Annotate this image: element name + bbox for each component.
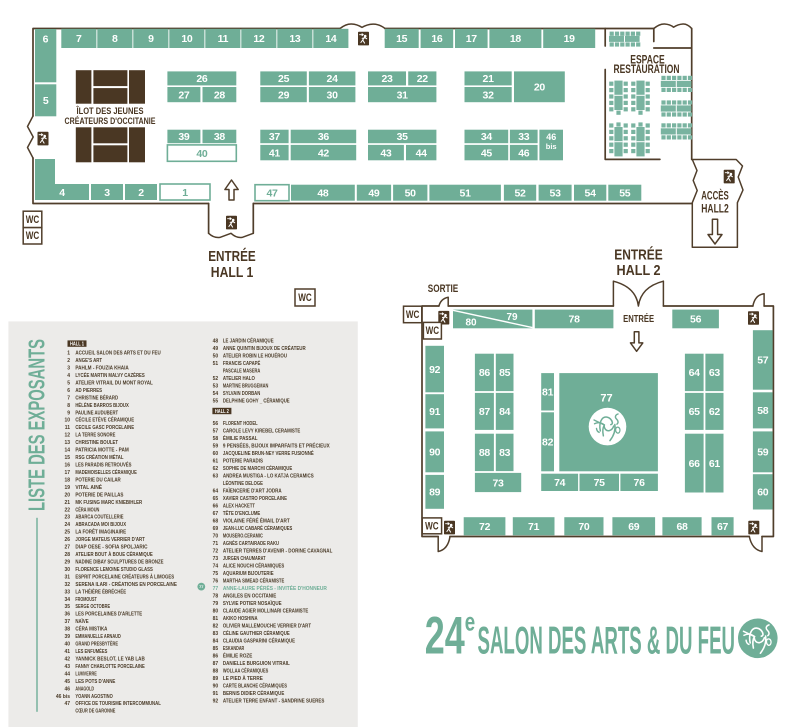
svg-text:11: 11	[218, 33, 229, 45]
svg-text:7: 7	[67, 395, 70, 401]
svg-text:OFFICE DE TOURISME INTERCOMMUN: OFFICE DE TOURISME INTERCOMMUNAL	[75, 701, 160, 707]
svg-text:PATRICIA MOTTE - PAM: PATRICIA MOTTE - PAM	[75, 448, 128, 454]
svg-text:AD PIERRES: AD PIERRES	[75, 388, 102, 394]
svg-text:4: 4	[67, 373, 70, 379]
svg-text:77: 77	[213, 586, 219, 592]
svg-text:66: 66	[213, 503, 219, 509]
svg-text:ABRACADA MOI BIJOUX: ABRACADA MOI BIJOUX	[75, 522, 126, 528]
svg-text:47: 47	[266, 188, 278, 200]
svg-text:LE PIED À TERRE: LE PIED À TERRE	[223, 675, 264, 682]
svg-text:68: 68	[676, 521, 688, 533]
svg-text:83: 83	[213, 631, 219, 637]
svg-text:69: 69	[628, 521, 640, 533]
svg-text:21: 21	[64, 500, 70, 506]
svg-text:52: 52	[514, 188, 526, 200]
svg-text:82: 82	[542, 437, 554, 449]
svg-text:8: 8	[112, 33, 118, 45]
svg-text:83: 83	[499, 447, 511, 459]
svg-text:ENTRÉE: ENTRÉE	[208, 248, 256, 265]
svg-text:85: 85	[213, 646, 219, 652]
svg-text:FLORENCE LEMOINE STUDIO GLASS: FLORENCE LEMOINE STUDIO GLASS	[75, 567, 153, 573]
svg-text:58: 58	[757, 405, 769, 417]
svg-text:CÉLINE GAUTHIER CÉRAMIQUE: CÉLINE GAUTHIER CÉRAMIQUE	[223, 629, 290, 637]
svg-text:70: 70	[213, 533, 219, 539]
svg-text:5: 5	[43, 95, 49, 107]
svg-text:CLAUDIA GASPARINI CÉRAMIQUE: CLAUDIA GASPARINI CÉRAMIQUE	[223, 636, 296, 644]
svg-text:18: 18	[510, 33, 522, 45]
svg-text:54: 54	[585, 188, 597, 200]
svg-text:54: 54	[213, 391, 219, 397]
svg-text:36: 36	[64, 612, 70, 618]
svg-text:9 PENSÉES, BIJOUX IMPARFAITS E: 9 PENSÉES, BIJOUX IMPARFAITS ET PRÉCIEUX	[223, 441, 330, 449]
svg-text:29: 29	[64, 559, 70, 565]
svg-text:57: 57	[213, 428, 219, 434]
svg-text:RSG CRÉATION MÉTAL: RSG CRÉATION MÉTAL	[75, 453, 123, 461]
svg-text:13: 13	[64, 440, 70, 446]
svg-text:91: 91	[213, 691, 219, 697]
svg-text:CECILE GASC PORCELAINE: CECILE GASC PORCELAINE	[75, 425, 134, 431]
svg-text:ANGE'S ART: ANGE'S ART	[75, 358, 102, 364]
svg-text:79: 79	[506, 312, 518, 323]
svg-text:FANNY CHARLOTTE PORCELAINE: FANNY CHARLOTTE PORCELAINE	[75, 664, 145, 670]
svg-text:72: 72	[213, 548, 219, 554]
svg-text:WC: WC	[298, 292, 312, 304]
svg-text:46: 46	[546, 132, 556, 142]
svg-text:WC: WC	[426, 325, 440, 337]
svg-text:ÉMILIE PASSAL: ÉMILIE PASSAL	[223, 434, 258, 442]
svg-text:LA THÉIÈRE ÉBRÉCHÉE: LA THÉIÈRE ÉBRÉCHÉE	[75, 587, 126, 595]
svg-text:MARTINE BRUGGEMAN: MARTINE BRUGGEMAN	[223, 383, 269, 389]
svg-text:45: 45	[481, 147, 493, 159]
svg-text:88: 88	[479, 447, 491, 459]
svg-text:33: 33	[64, 589, 70, 595]
svg-text:NADINE DIBAY SCULPTURES DE BRO: NADINE DIBAY SCULPTURES DE BRONZE	[75, 559, 164, 565]
svg-text:CÉRA MOUN: CÉRA MOUN	[75, 505, 99, 513]
svg-text:88: 88	[213, 668, 219, 674]
svg-text:8: 8	[67, 403, 70, 409]
svg-text:89: 89	[429, 487, 441, 499]
svg-text:12: 12	[64, 433, 70, 439]
svg-text:LYCÉE MARTIN MALVY CAZÈRES: LYCÉE MARTIN MALVY CAZÈRES	[75, 371, 145, 379]
svg-text:LES PARADIS RETROUVÉS: LES PARADIS RETROUVÉS	[75, 461, 132, 469]
svg-text:BERNIS DIDIER CÉRAMIQUE: BERNIS DIDIER CÉRAMIQUE	[223, 689, 285, 697]
svg-text:35: 35	[397, 131, 409, 143]
svg-text:PAHLM - FOUZIA KHAIA: PAHLM - FOUZIA KHAIA	[75, 366, 129, 372]
svg-text:WC: WC	[26, 214, 40, 226]
svg-text:63: 63	[709, 367, 721, 379]
svg-text:31: 31	[397, 89, 409, 101]
svg-text:50: 50	[213, 353, 219, 359]
svg-text:38: 38	[214, 131, 226, 143]
svg-text:3: 3	[104, 187, 110, 199]
svg-text:64: 64	[689, 367, 701, 379]
svg-text:ESKANDAR: ESKANDAR	[223, 646, 245, 652]
svg-text:HALL 2: HALL 2	[617, 262, 661, 279]
svg-text:39: 39	[178, 131, 190, 143]
svg-text:34: 34	[64, 597, 70, 603]
svg-text:bis: bis	[546, 142, 557, 151]
svg-text:81: 81	[213, 616, 219, 622]
svg-text:POTERIE DU CAILAR: POTERIE DU CAILAR	[75, 477, 121, 483]
svg-text:1: 1	[67, 351, 70, 357]
svg-text:FROMOUST: FROMOUST	[75, 597, 96, 603]
svg-text:34: 34	[481, 131, 493, 143]
svg-text:22: 22	[64, 507, 70, 513]
svg-text:30: 30	[64, 567, 70, 573]
svg-text:80: 80	[465, 317, 477, 328]
svg-text:51: 51	[213, 361, 219, 367]
svg-text:ANNE-LAURE PÉRÈS - INVITÉE D'H: ANNE-LAURE PÉRÈS - INVITÉE D'HONNEUR	[223, 584, 327, 592]
svg-text:69: 69	[213, 526, 219, 532]
svg-text:ESPRIT PORCELAINE CRÉATEURS À: ESPRIT PORCELAINE CRÉATEURS À LIMOGES	[75, 572, 174, 580]
svg-text:PAULINE AUDUBERT: PAULINE AUDUBERT	[75, 410, 118, 416]
svg-text:LES PORCELAINES D'ARLETTE: LES PORCELAINES D'ARLETTE	[75, 612, 142, 618]
svg-text:20: 20	[534, 82, 546, 94]
svg-text:55: 55	[213, 398, 219, 404]
svg-text:78: 78	[213, 593, 219, 599]
svg-text:56: 56	[213, 421, 219, 427]
svg-text:JEAN-LUC CABARÉ CÉRAMIQUES: JEAN-LUC CABARÉ CÉRAMIQUES	[223, 524, 293, 532]
svg-text:HALL2: HALL2	[701, 202, 729, 216]
svg-text:CRÉATEURS D'OCCITANIE: CRÉATEURS D'OCCITANIE	[65, 115, 156, 127]
svg-text:XAVIER CASTRO PORCELAINE: XAVIER CASTRO PORCELAINE	[223, 496, 288, 502]
svg-text:50: 50	[405, 188, 417, 200]
svg-text:72: 72	[479, 521, 491, 533]
svg-text:PASCALE MASERA: PASCALE MASERA	[223, 368, 261, 374]
svg-text:AQUARIUM BIJOUTERIE: AQUARIUM BIJOUTERIE	[223, 571, 274, 577]
svg-text:YOANN AGOSTINO: YOANN AGOSTINO	[75, 694, 112, 700]
svg-text:WC: WC	[26, 230, 40, 242]
svg-text:32: 32	[64, 582, 70, 588]
svg-text:26: 26	[196, 73, 208, 85]
svg-text:SOPHIE DE MARCHI CÉRAMIQUE: SOPHIE DE MARCHI CÉRAMIQUE	[223, 464, 293, 472]
svg-text:73: 73	[492, 477, 504, 489]
svg-text:EMMANUELLE ARNAUD: EMMANUELLE ARNAUD	[75, 634, 121, 640]
svg-text:CHRISTINE BOULET: CHRISTINE BOULET	[75, 440, 118, 446]
svg-text:LÉONTINE DELOGE: LÉONTINE DELOGE	[223, 479, 264, 487]
svg-text:30: 30	[327, 89, 339, 101]
svg-text:HALL 1: HALL 1	[211, 265, 254, 281]
svg-text:85: 85	[499, 367, 511, 379]
svg-text:48: 48	[213, 338, 219, 344]
svg-text:ANGILES EN OCCITANIE: ANGILES EN OCCITANIE	[223, 593, 277, 599]
svg-text:59: 59	[757, 447, 769, 459]
svg-text:JACQUELINE BRUN-NEY VERRE FUSI: JACQUELINE BRUN-NEY VERRE FUSIONNÉ	[223, 449, 314, 457]
svg-text:17: 17	[466, 33, 478, 45]
svg-text:24: 24	[425, 606, 465, 665]
svg-text:92: 92	[429, 364, 441, 376]
svg-text:12: 12	[253, 33, 265, 45]
svg-text:MOUSERO.CERAMIC: MOUSERO.CERAMIC	[223, 533, 263, 539]
svg-text:71: 71	[528, 521, 540, 533]
svg-text:ANDREA MUSTIGA - LO KATJA CERA: ANDREA MUSTIGA - LO KATJA CERAMICS	[223, 473, 314, 479]
svg-text:71: 71	[213, 541, 219, 547]
svg-text:75: 75	[594, 477, 606, 489]
svg-text:53: 53	[550, 188, 562, 200]
svg-text:46: 46	[518, 147, 530, 159]
svg-text:28: 28	[64, 552, 70, 558]
svg-text:FRANCIS CAPAPÉ: FRANCIS CAPAPÉ	[223, 359, 261, 367]
svg-text:RESTAURATION: RESTAURATION	[614, 62, 680, 76]
svg-text:90: 90	[429, 447, 441, 459]
svg-text:17: 17	[64, 470, 70, 476]
svg-text:65: 65	[213, 496, 219, 502]
svg-text:39: 39	[64, 634, 70, 640]
svg-text:YANNICK BESLOT, LE YAB LAB: YANNICK BESLOT, LE YAB LAB	[75, 656, 145, 662]
svg-text:TÊTE D'ENCLUME: TÊTE D'ENCLUME	[223, 509, 261, 517]
svg-text:DANIELLE BURGUION VITRAIL: DANIELLE BURGUION VITRAIL	[223, 661, 290, 667]
svg-text:79: 79	[213, 601, 219, 607]
svg-text:15: 15	[396, 33, 408, 45]
svg-text:WC: WC	[406, 309, 420, 321]
svg-text:77: 77	[600, 392, 612, 404]
svg-text:74: 74	[213, 563, 219, 569]
svg-text:ACCÈS: ACCÈS	[701, 187, 729, 202]
svg-text:33: 33	[518, 131, 530, 143]
svg-text:65: 65	[689, 406, 701, 418]
svg-text:LES ENFUMÉES: LES ENFUMÉES	[75, 647, 108, 655]
svg-text:9: 9	[148, 33, 154, 45]
svg-text:35: 35	[64, 604, 70, 610]
svg-text:ABARCA COUTELLERIE: ABARCA COUTELLERIE	[75, 515, 124, 521]
svg-text:16: 16	[64, 463, 70, 469]
svg-text:62: 62	[709, 406, 721, 418]
svg-text:JURGEN CHAUMARAT: JURGEN CHAUMARAT	[223, 556, 266, 562]
svg-text:DELPHINE GOHY _ CÉRAMIQUE: DELPHINE GOHY _ CÉRAMIQUE	[223, 396, 290, 404]
svg-text:NAÏVE: NAÏVE	[75, 618, 89, 625]
svg-text:FAÏENCERIE D'ART JODRA: FAÏENCERIE D'ART JODRA	[223, 487, 282, 494]
svg-text:19: 19	[564, 33, 576, 45]
svg-text:POTERIE PARADIS: POTERIE PARADIS	[223, 458, 264, 464]
svg-text:SORTIE: SORTIE	[428, 283, 459, 295]
svg-text:4: 4	[59, 187, 65, 199]
svg-text:25: 25	[64, 530, 70, 536]
svg-text:HALL 2: HALL 2	[215, 409, 229, 415]
svg-text:67: 67	[213, 511, 219, 517]
svg-text:42: 42	[64, 656, 70, 662]
svg-text:CÉRA MISTIKA: CÉRA MISTIKA	[75, 625, 107, 633]
svg-text:73: 73	[213, 556, 219, 562]
svg-text:DIAP OESE - SOFIA SPOLJARIC: DIAP OESE - SOFIA SPOLJARIC	[75, 545, 147, 551]
svg-text:29: 29	[278, 89, 290, 101]
svg-text:21: 21	[483, 73, 495, 85]
svg-text:59: 59	[213, 443, 219, 449]
svg-text:75: 75	[213, 571, 219, 577]
svg-text:GRAND PRESBYTÈRE: GRAND PRESBYTÈRE	[75, 640, 118, 648]
svg-text:45: 45	[64, 679, 70, 685]
svg-text:57: 57	[757, 355, 769, 367]
svg-text:15: 15	[64, 455, 70, 461]
svg-text:CAROLE LEVY KIREBEL CERAMISTE: CAROLE LEVY KIREBEL CERAMISTE	[223, 428, 301, 434]
svg-text:JORGE MATEUS VERRIER D'ART: JORGE MATEUS VERRIER D'ART	[75, 537, 144, 543]
svg-text:60: 60	[757, 487, 769, 499]
svg-text:64: 64	[213, 488, 219, 494]
svg-text:SERENA ILARI - CRÉATIONS EN PO: SERENA ILARI - CRÉATIONS EN PORCELAINE	[75, 580, 177, 588]
svg-text:67: 67	[717, 521, 729, 533]
svg-text:78: 78	[569, 314, 581, 326]
svg-text:ATELIER ROBIN LE HOUÉROU: ATELIER ROBIN LE HOUÉROU	[223, 351, 287, 359]
svg-text:POTERIE DE PAILLAS: POTERIE DE PAILLAS	[75, 492, 124, 498]
svg-text:82: 82	[213, 623, 219, 629]
svg-text:42: 42	[318, 147, 330, 159]
svg-text:86: 86	[213, 653, 219, 659]
svg-text:61: 61	[213, 458, 219, 464]
svg-text:20: 20	[64, 492, 70, 498]
svg-text:87: 87	[213, 661, 219, 667]
svg-text:77: 77	[199, 584, 204, 589]
svg-text:61: 61	[709, 458, 721, 470]
svg-text:43: 43	[380, 147, 392, 159]
svg-text:AKIKO HOSHINA: AKIKO HOSHINA	[223, 616, 258, 622]
svg-text:86: 86	[479, 367, 491, 379]
svg-text:WC: WC	[425, 520, 439, 532]
svg-text:ALICE NOUCHI CÉRAMIQUES: ALICE NOUCHI CÉRAMIQUES	[223, 561, 285, 569]
svg-text:LA FORÊT IMAGINAIRE: LA FORÊT IMAGINAIRE	[75, 528, 126, 536]
svg-text:SYLVIE POTIER NOSAÏQUE: SYLVIE POTIER NOSAÏQUE	[223, 600, 282, 607]
svg-text:LISTE DES EXPOSANTS: LISTE DES EXPOSANTS	[24, 339, 50, 511]
svg-text:LUMVERRE: LUMVERRE	[75, 671, 97, 677]
svg-text:AGNÈS CARTAIRADE RAKU: AGNÈS CARTAIRADE RAKU	[223, 539, 279, 547]
svg-text:ATELIER TERRES D'AVENIR - DORI: ATELIER TERRES D'AVENIR - DORINE CAVAGNA…	[223, 548, 333, 554]
svg-text:90: 90	[213, 683, 219, 689]
svg-text:6: 6	[67, 388, 70, 394]
svg-text:5: 5	[67, 380, 70, 386]
svg-text:e: e	[465, 606, 475, 636]
svg-text:58: 58	[213, 436, 219, 442]
svg-text:91: 91	[429, 406, 441, 418]
svg-text:2: 2	[138, 187, 144, 199]
svg-text:84: 84	[499, 406, 511, 418]
svg-text:FLORENT HODEL: FLORENT HODEL	[223, 421, 258, 427]
svg-text:ENTRÉE: ENTRÉE	[623, 314, 654, 325]
svg-text:70: 70	[578, 521, 590, 533]
svg-text:44: 44	[416, 147, 428, 159]
svg-text:HALL 1: HALL 1	[70, 342, 84, 348]
svg-text:SYLVAIN DORBAN: SYLVAIN DORBAN	[223, 391, 261, 397]
svg-text:19: 19	[64, 485, 70, 491]
svg-text:56: 56	[690, 314, 702, 326]
svg-text:24: 24	[327, 73, 339, 85]
svg-text:87: 87	[479, 406, 491, 418]
svg-text:14: 14	[64, 448, 70, 454]
svg-text:LE JARDIN CÉRAMIQUE: LE JARDIN CÉRAMIQUE	[223, 336, 274, 344]
svg-text:40: 40	[64, 642, 70, 648]
svg-text:6: 6	[43, 34, 49, 46]
svg-text:26: 26	[64, 537, 70, 543]
svg-text:80: 80	[213, 608, 219, 614]
svg-text:46: 46	[64, 686, 70, 692]
svg-text:41: 41	[269, 147, 281, 159]
svg-text:47: 47	[64, 701, 70, 707]
svg-text:52: 52	[213, 376, 219, 382]
svg-text:63: 63	[213, 473, 219, 479]
svg-text:51: 51	[460, 188, 472, 200]
svg-text:32: 32	[483, 89, 495, 101]
svg-text:SERGE OCTOBRE: SERGE OCTOBRE	[75, 604, 110, 610]
svg-text:MARTHA SIMEAD CÉRAMISTE: MARTHA SIMEAD CÉRAMISTE	[223, 576, 285, 584]
svg-text:9: 9	[67, 410, 70, 416]
svg-text:ATELIER VITRAIL DU MONT ROYAL: ATELIER VITRAIL DU MONT ROYAL	[75, 380, 152, 386]
svg-text:25: 25	[278, 73, 290, 85]
svg-text:16: 16	[431, 33, 443, 45]
svg-text:37: 37	[64, 619, 70, 625]
svg-text:13: 13	[289, 33, 301, 45]
svg-text:41: 41	[64, 649, 70, 655]
svg-text:68: 68	[213, 518, 219, 524]
svg-text:CARTE BLANCHE CÉRAMIQUES: CARTE BLANCHE CÉRAMIQUES	[223, 681, 288, 689]
svg-text:18: 18	[64, 477, 70, 483]
svg-text:ATELIER BOUT À BOUE CÉRAMIQUE: ATELIER BOUT À BOUE CÉRAMIQUE	[75, 550, 153, 558]
svg-text:60: 60	[213, 451, 219, 457]
svg-text:23: 23	[381, 73, 393, 85]
svg-text:31: 31	[64, 574, 70, 580]
svg-text:24: 24	[64, 522, 70, 528]
svg-text:22: 22	[417, 73, 429, 85]
svg-text:43: 43	[64, 664, 70, 670]
svg-text:49: 49	[213, 346, 219, 352]
svg-text:44: 44	[64, 671, 70, 677]
svg-text:ÉMILIE ROZE: ÉMILIE ROZE	[223, 651, 253, 659]
svg-text:LA TERRE SONORE: LA TERRE SONORE	[75, 433, 116, 439]
svg-text:62: 62	[213, 466, 219, 472]
svg-text:2: 2	[67, 358, 70, 364]
svg-text:10: 10	[64, 418, 70, 424]
svg-text:48: 48	[317, 188, 329, 200]
svg-text:MADEMOISELLES CÉRAMIQUE: MADEMOISELLES CÉRAMIQUE	[75, 468, 137, 476]
svg-text:38: 38	[64, 627, 70, 633]
svg-text:MK FUSING MARC KNIEBIHLER: MK FUSING MARC KNIEBIHLER	[75, 500, 142, 506]
svg-text:ACCUEIL SALON DES ARTS ET DU F: ACCUEIL SALON DES ARTS ET DU FEU	[75, 351, 161, 357]
svg-text:HÉLÈNE BARROS BIJOUX: HÉLÈNE BARROS BIJOUX	[75, 401, 129, 409]
svg-text:89: 89	[213, 676, 219, 682]
svg-text:CLAUDE AGIER MOLLINARI CERAMIS: CLAUDE AGIER MOLLINARI CERAMISTE	[223, 608, 309, 614]
svg-text:36: 36	[318, 131, 330, 143]
svg-text:7: 7	[76, 33, 82, 45]
svg-text:10: 10	[181, 33, 193, 45]
svg-text:11: 11	[65, 425, 71, 431]
svg-text:76: 76	[634, 477, 646, 489]
svg-text:1: 1	[182, 187, 188, 199]
svg-text:ATELIER HALO: ATELIER HALO	[223, 376, 255, 382]
svg-text:37: 37	[269, 131, 281, 143]
svg-text:55: 55	[619, 188, 631, 200]
svg-text:CHRISTINE BÉRARD: CHRISTINE BÉRARD	[75, 393, 118, 401]
svg-text:CÉCILE ETÈVE CÉRAMIQUE: CÉCILE ETÈVE CÉRAMIQUE	[75, 416, 134, 424]
svg-text:CŒUR DE GARONNE: CŒUR DE GARONNE	[75, 709, 116, 715]
svg-text:46 bis: 46 bis	[56, 694, 70, 700]
svg-text:WOLLAA CÉRAMIQUES: WOLLAA CÉRAMIQUES	[223, 666, 269, 674]
svg-text:40: 40	[196, 148, 208, 160]
svg-text:81: 81	[542, 387, 554, 399]
svg-text:66: 66	[689, 458, 701, 470]
svg-text:SALON DES ARTS & DU FEU: SALON DES ARTS & DU FEU	[478, 619, 736, 662]
svg-text:LES POTS D'ANNE: LES POTS D'ANNE	[75, 679, 116, 685]
svg-text:76: 76	[213, 578, 219, 584]
svg-text:OLIVIER MALLEMOUCHE VERRIER D': OLIVIER MALLEMOUCHE VERRIER D'ART	[223, 623, 311, 629]
svg-text:ANAGOLD: ANAGOLD	[75, 686, 94, 692]
svg-text:ALEX HACKETT: ALEX HACKETT	[223, 503, 255, 509]
svg-text:74: 74	[554, 477, 566, 489]
svg-text:28: 28	[214, 89, 226, 101]
svg-text:92: 92	[213, 698, 219, 704]
svg-text:27: 27	[64, 545, 70, 551]
svg-text:53: 53	[213, 383, 219, 389]
svg-text:ANNE QUINTIN BIJOUX DE CRÉATEU: ANNE QUINTIN BIJOUX DE CRÉATEUR	[223, 344, 306, 352]
svg-text:27: 27	[178, 89, 190, 101]
svg-text:23: 23	[64, 515, 70, 521]
svg-text:14: 14	[325, 33, 337, 45]
svg-text:3: 3	[67, 366, 70, 372]
